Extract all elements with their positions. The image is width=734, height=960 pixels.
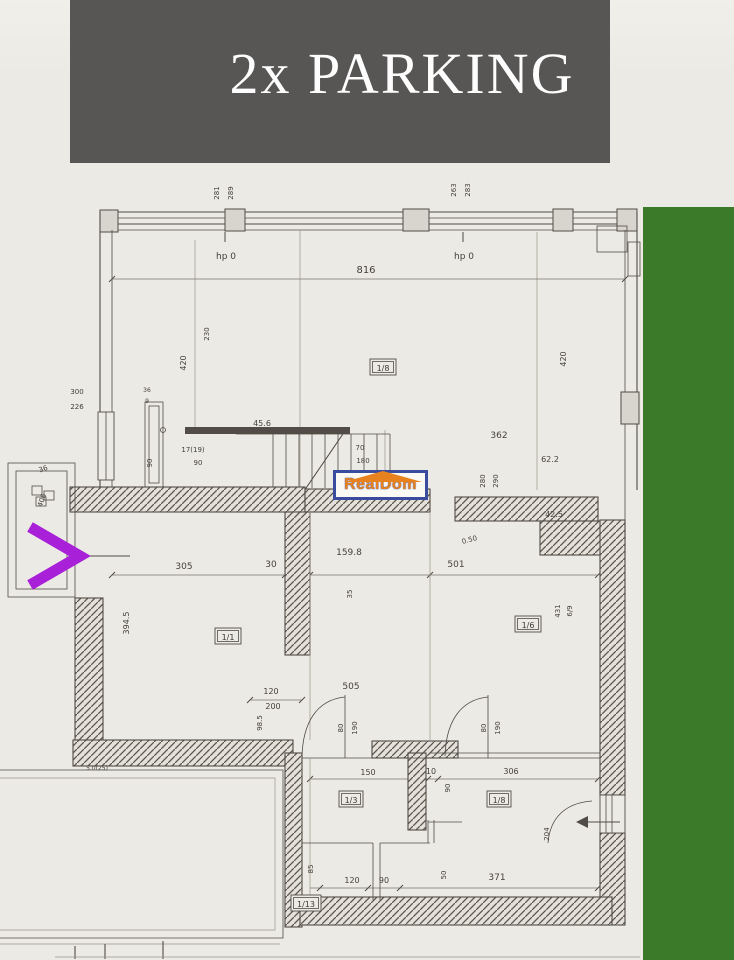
dim-label: 120 xyxy=(344,876,359,885)
dim-label: 70 xyxy=(356,444,365,452)
title-banner: 2x PARKING xyxy=(70,0,610,163)
dim-label: 263 xyxy=(450,183,458,196)
dim-label: 80 xyxy=(337,724,345,733)
terrace-outline xyxy=(0,770,283,944)
dim-label: 85 xyxy=(307,865,315,874)
dim-label: 283 xyxy=(464,183,472,196)
room-tag: 1/8 xyxy=(370,359,396,375)
listing-image: { "banner": { "title": "2x PARKING" }, "… xyxy=(0,0,734,960)
dim-label: 6/9 xyxy=(566,605,574,616)
dim-label: 90 xyxy=(444,784,452,793)
dim-label: 36 xyxy=(38,464,50,475)
dim-label: 230 xyxy=(203,327,211,340)
dim-label: hp 0 xyxy=(216,252,236,262)
dim-label: 150 xyxy=(360,768,375,777)
dim-label: 90 xyxy=(194,459,203,467)
dim-label: 362 xyxy=(490,431,507,441)
dim-label: 45.6 xyxy=(253,419,271,428)
dim-label: 90 xyxy=(379,876,389,885)
dim-label: 226 xyxy=(70,403,84,411)
dim-label: 816 xyxy=(356,265,375,276)
room-tag: 1/3 xyxy=(339,791,363,807)
dim-label: 30 xyxy=(265,560,277,570)
dim-label: 501 xyxy=(447,560,464,570)
room-tag-label: 1/8 xyxy=(493,796,506,805)
dim-label: 90 xyxy=(146,459,154,468)
dim-label: 394.5 xyxy=(122,612,131,635)
dim-label: 289 xyxy=(227,186,235,199)
dim-label: 505 xyxy=(342,682,359,692)
dim-label: 50 xyxy=(440,871,448,880)
dim-label: 42.5 xyxy=(545,510,563,519)
room-tag: 1/13 xyxy=(291,895,321,911)
room-tag: 1/6 xyxy=(515,616,541,632)
dim-label: 35 xyxy=(346,590,354,599)
side-entrance xyxy=(576,795,625,833)
dim-label: 190 xyxy=(351,721,359,734)
room-tag: 1/8 xyxy=(487,791,511,807)
dim-label: 420 xyxy=(179,355,188,370)
dim-label: 190 xyxy=(494,721,502,734)
room-tag-label: 1/13 xyxy=(297,900,315,909)
green-side-panel xyxy=(643,207,734,960)
dim-label: 305 xyxy=(175,562,192,572)
realdom-watermark: RealDom xyxy=(333,462,428,500)
dim-label: 290 xyxy=(492,474,500,487)
dim-label: 0.50 xyxy=(461,534,478,546)
dim-label: 159.8 xyxy=(336,548,362,558)
dim-label: hp 0 xyxy=(454,252,474,262)
dim-label: 306 xyxy=(503,767,518,776)
room-tag-label: 1/3 xyxy=(345,796,358,805)
roof-icon xyxy=(344,471,422,482)
room-tag-label: 1/1 xyxy=(222,633,235,642)
dim-label: 300 xyxy=(70,388,83,396)
room-tag-label: 1/6 xyxy=(522,621,535,630)
dim-label: 9 xyxy=(145,398,149,405)
room-tag-label: 1/8 xyxy=(377,364,390,373)
annotation-arrow xyxy=(30,527,80,585)
dim-label: 10 xyxy=(426,767,436,776)
entry-arrow-icon xyxy=(576,816,588,828)
dim-label: 36 xyxy=(143,387,151,394)
banner-title: 2x PARKING xyxy=(230,40,575,107)
dim-label: 280 xyxy=(479,474,487,487)
dim-label: 80 xyxy=(480,724,488,733)
dim-label: 62.2 xyxy=(541,455,559,464)
dim-label: 98.5 xyxy=(256,715,264,731)
dim-label: 371 xyxy=(488,873,505,883)
dim-label: 431 xyxy=(554,604,562,617)
dim-label: 5.0(25) xyxy=(86,765,108,772)
dim-label: 420 xyxy=(559,351,568,366)
dim-label: 120 xyxy=(263,687,278,696)
dim-label: 200 xyxy=(265,702,280,711)
watermark-box: RealDom xyxy=(333,470,428,500)
dim-label: 17(19) xyxy=(181,446,205,454)
dim-label: 281 xyxy=(213,186,221,199)
dim-label: 204 xyxy=(543,827,551,841)
room-tag: 1/1 xyxy=(215,628,241,644)
